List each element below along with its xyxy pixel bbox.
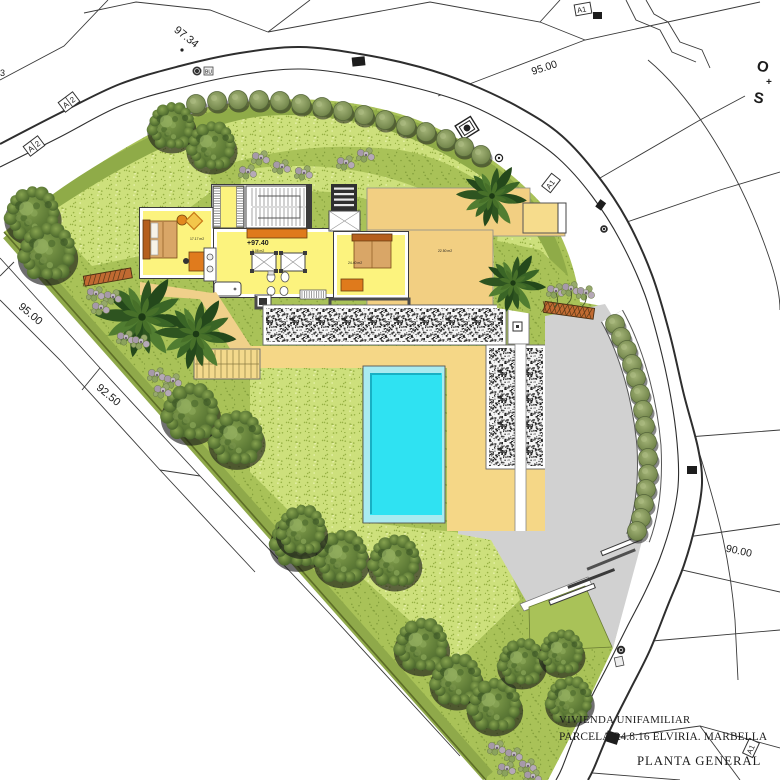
svg-text:VIVIENDA UNIFAMILIAR: VIVIENDA UNIFAMILIAR <box>559 714 691 726</box>
svg-text:BU: BU <box>205 70 212 76</box>
svg-text:9.08 m2: 9.08 m2 <box>252 249 264 253</box>
svg-text:PARCELA R4.8.16 ELVIRIA. MAR: PARCELA R4.8.16 ELVIRIA. MARBELLA <box>559 731 768 743</box>
svg-text:A1: A1 <box>576 5 587 15</box>
svg-text:3: 3 <box>0 68 5 78</box>
svg-text:+97.40: +97.40 <box>247 240 269 247</box>
svg-text:17.17 m2: 17.17 m2 <box>190 237 204 241</box>
svg-text:PLANTA GENERAL: PLANTA GENERAL <box>637 754 761 768</box>
svg-text:24.40 m2: 24.40 m2 <box>348 261 362 265</box>
svg-text:+: + <box>766 77 772 88</box>
svg-text:22.50 m2: 22.50 m2 <box>438 249 452 253</box>
